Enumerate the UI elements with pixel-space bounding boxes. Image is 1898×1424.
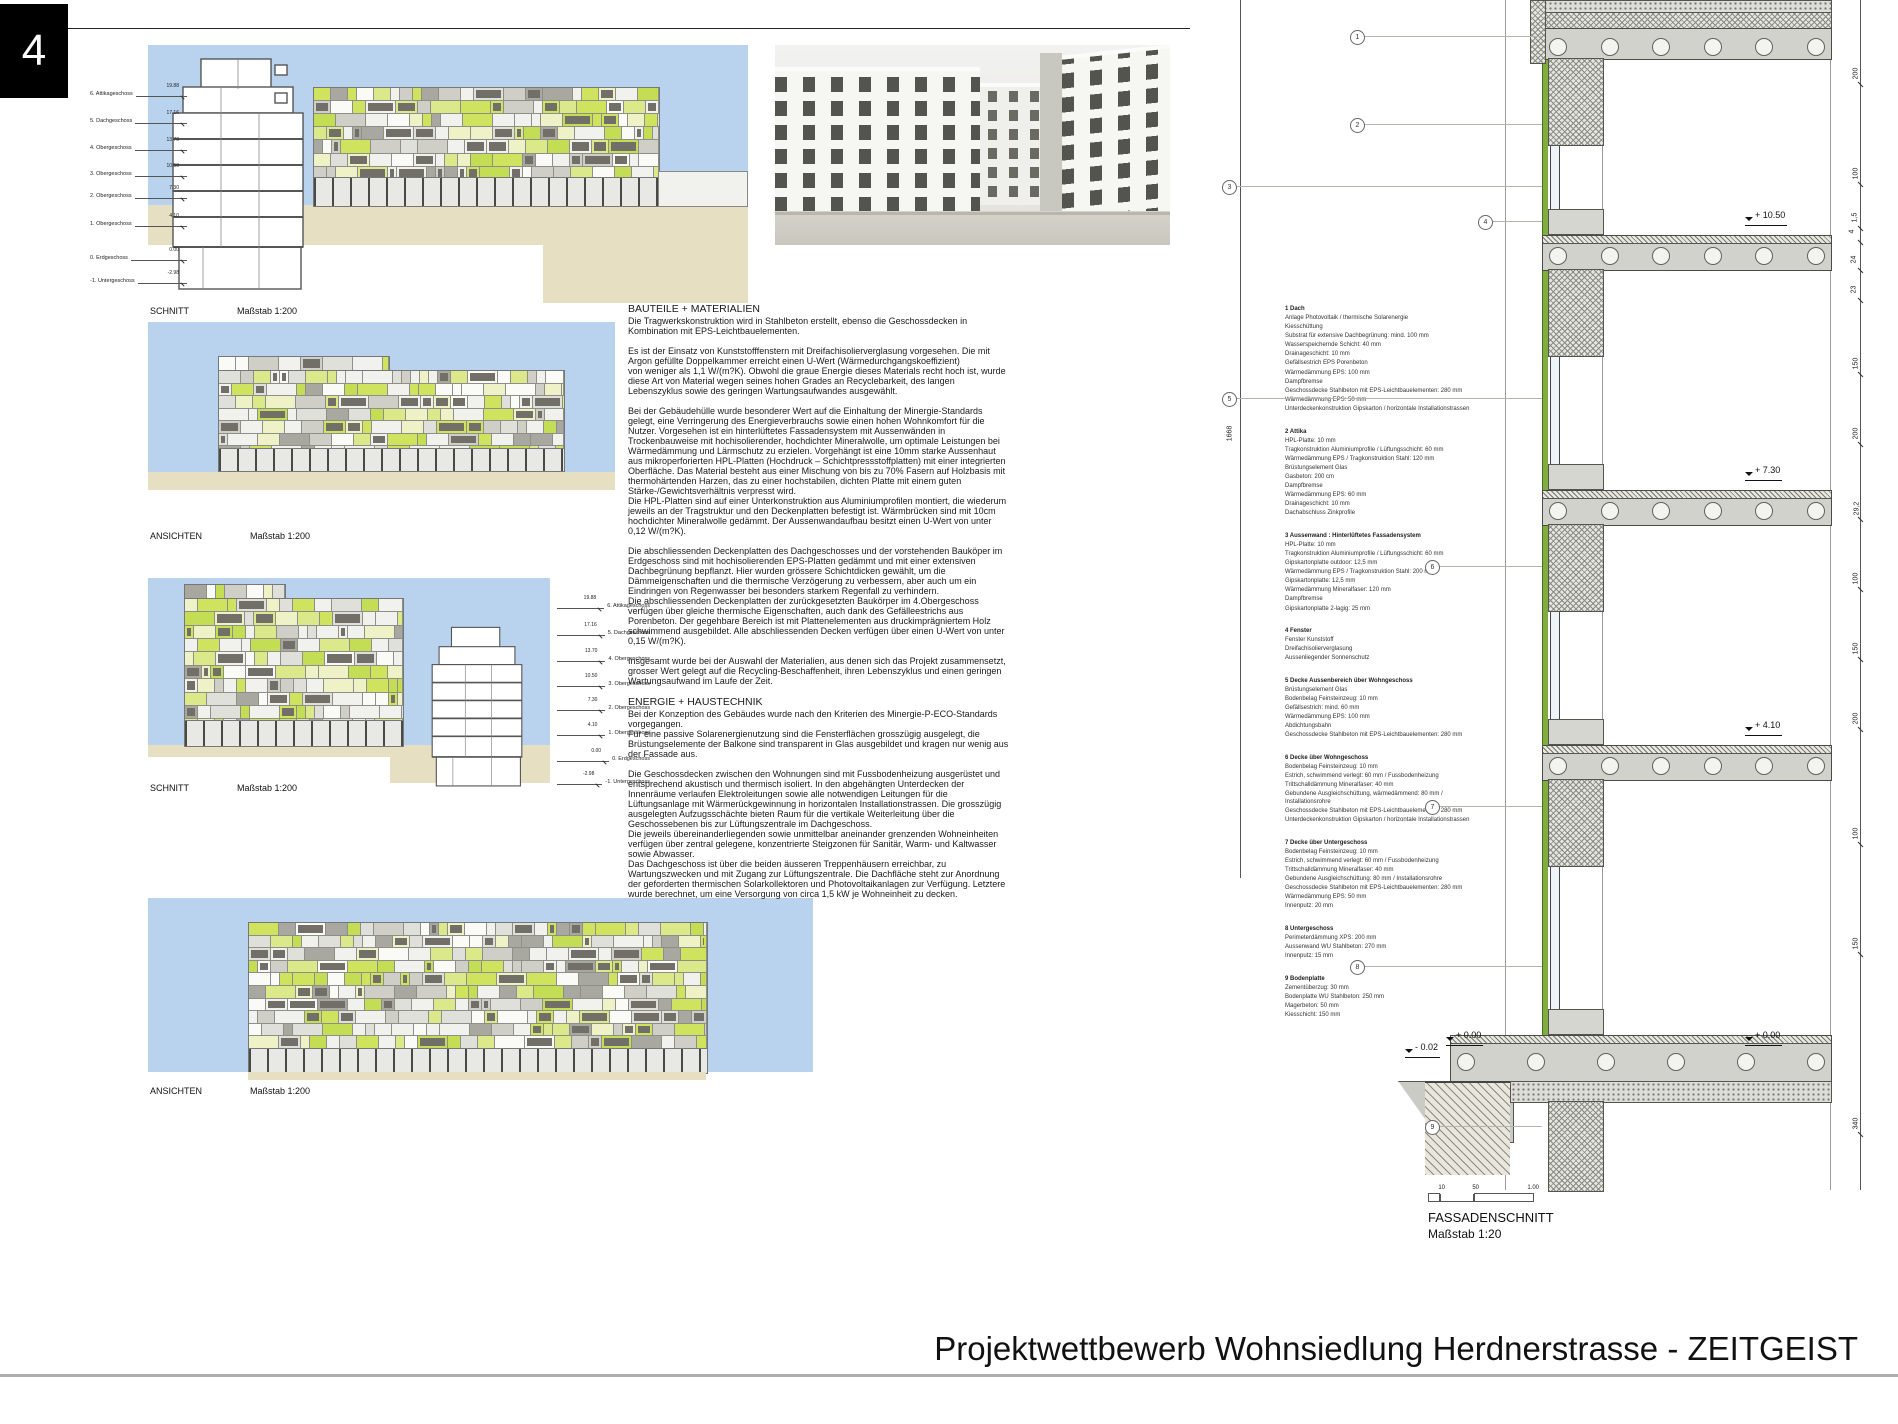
ground-floor-glazing bbox=[248, 1048, 708, 1074]
hollow-core bbox=[1601, 757, 1619, 775]
level-leader-line: 19.88 bbox=[557, 600, 604, 609]
mosaic-row bbox=[219, 409, 564, 421]
dimension-value: 200 bbox=[1852, 68, 1859, 80]
floor-level-row: 3. Obergeschoss10.50 bbox=[90, 168, 190, 177]
mosaic-row bbox=[219, 384, 564, 396]
level-tick bbox=[598, 607, 602, 611]
dimension-value: 4 bbox=[1848, 230, 1855, 234]
drawing-scale: Maßstab 1:200 bbox=[250, 531, 310, 541]
mosaic-row bbox=[249, 986, 707, 998]
ground-floor-glazing bbox=[184, 720, 404, 747]
body-paragraph: Es ist der Einsatz von Kunststofffenster… bbox=[628, 346, 1068, 396]
reference-bubble: 1 bbox=[1350, 30, 1365, 45]
elevation-mark: + 10.50 bbox=[1745, 210, 1787, 226]
photo-building-left bbox=[775, 67, 980, 221]
mosaic-row bbox=[185, 599, 403, 611]
elevation-triangle bbox=[1405, 1049, 1413, 1057]
section-building-drawing bbox=[404, 626, 550, 788]
level-leader-line: 7.30 bbox=[557, 702, 605, 711]
floor-level-row: 0. Erdgeschoss0.00 bbox=[90, 252, 190, 261]
dimension-value: 1,5 bbox=[1851, 213, 1858, 223]
drawing-title: ANSICHTEN bbox=[150, 531, 202, 541]
level-elevation: 17.16 bbox=[584, 622, 597, 628]
drawing-label-schnitt-1: SCHNITTMaßstab 1:200 bbox=[150, 306, 297, 316]
dimension-value: 150 bbox=[1852, 938, 1859, 950]
level-name: 5. Dachgeschoss bbox=[90, 118, 132, 124]
level-tick bbox=[602, 760, 606, 764]
photo-building-side-face bbox=[1040, 53, 1062, 231]
scale-bar-segment: 10 bbox=[1428, 1193, 1440, 1202]
level-leader-line: 10.50 bbox=[557, 678, 605, 687]
hollow-core bbox=[1601, 38, 1619, 56]
window-head-block bbox=[1548, 209, 1604, 235]
fassade-scale: Maßstab 1:20 bbox=[1428, 1227, 1554, 1241]
floor-level-row: 5. Dachgeschoss17.16 bbox=[90, 115, 190, 124]
scale-bar-label: 50 bbox=[1472, 1185, 1479, 1191]
window-glazing bbox=[1550, 867, 1560, 1009]
energy-heading: ENERGIE + HAUSTECHNIK bbox=[628, 696, 1068, 708]
level-tick bbox=[599, 734, 603, 738]
elevation-triangle bbox=[1446, 1037, 1454, 1045]
mosaic-row bbox=[185, 679, 403, 691]
body-paragraph: Die Geschossdecken zwischen den Wohnunge… bbox=[628, 769, 1068, 899]
level-leader-line: 19.88 bbox=[136, 88, 187, 97]
hollow-core bbox=[1652, 38, 1670, 56]
scale-bar-segment: 50 bbox=[1440, 1194, 1474, 1202]
dimension-value: 100 bbox=[1852, 828, 1859, 840]
level-name: 0. Erdgeschoss bbox=[90, 255, 128, 261]
elevation-triangle bbox=[1745, 217, 1753, 225]
mosaic-row bbox=[249, 936, 707, 948]
dimension-value: 100 bbox=[1852, 573, 1859, 585]
hollow-core bbox=[1652, 502, 1670, 520]
level-tick bbox=[598, 634, 602, 638]
photo-curb bbox=[775, 212, 1170, 215]
photo-ground bbox=[775, 211, 1170, 245]
level-leader-line: 17.16 bbox=[557, 627, 605, 636]
hollow-core bbox=[1667, 1053, 1685, 1071]
mosaic-row bbox=[219, 357, 389, 370]
body-paragraph: Bei der Konzeption des Gebäudes wurde na… bbox=[628, 709, 1068, 759]
level-name: 4. Obergeschoss bbox=[90, 145, 132, 151]
hollow-cores bbox=[1549, 755, 1825, 777]
hollow-core bbox=[1807, 247, 1825, 265]
level-tick bbox=[599, 709, 603, 713]
reference-leader bbox=[1438, 566, 1542, 567]
hollow-core bbox=[1549, 757, 1567, 775]
mosaic-row bbox=[249, 999, 707, 1011]
ground-floor-glazing bbox=[313, 177, 660, 207]
drawing-ansichten-2 bbox=[148, 898, 813, 1088]
level-leader-line: 0.00 bbox=[557, 753, 609, 762]
hollow-core bbox=[1755, 247, 1773, 265]
reference-leader bbox=[1235, 398, 1542, 399]
ground-band-deep bbox=[543, 243, 748, 303]
top-rule bbox=[68, 28, 1190, 29]
mosaic-row bbox=[249, 1036, 707, 1048]
mosaic-row bbox=[185, 666, 403, 678]
total-dimension-line bbox=[1240, 0, 1241, 878]
window-glazing bbox=[1550, 612, 1560, 719]
level-elevation: 7.30 bbox=[588, 697, 598, 703]
drawing-scale: Maßstab 1:200 bbox=[237, 306, 297, 316]
drawing-schnitt-2 bbox=[148, 578, 618, 790]
level-leader-line: 4.10 bbox=[135, 218, 187, 227]
mosaic-row bbox=[185, 693, 403, 705]
dimension-value: 200 bbox=[1852, 428, 1859, 440]
hollow-core bbox=[1527, 1053, 1545, 1071]
hollow-cores bbox=[1549, 500, 1825, 522]
reference-leader bbox=[1491, 221, 1542, 222]
level-tick bbox=[599, 685, 603, 689]
dimension-chain-line bbox=[1860, 0, 1861, 1190]
scale-bar-segment: 1.00 bbox=[1474, 1193, 1534, 1202]
mosaic-row bbox=[185, 639, 403, 651]
level-elevation: 19.88 bbox=[584, 595, 597, 601]
hollow-core bbox=[1755, 502, 1773, 520]
scale-bar-label: 10 bbox=[1438, 1185, 1445, 1191]
reference-leader bbox=[1363, 966, 1542, 967]
screed-layer bbox=[1543, 491, 1831, 499]
mosaic-row bbox=[185, 706, 403, 718]
drawing-title: SCHNITT bbox=[150, 306, 189, 316]
hollow-core bbox=[1755, 38, 1773, 56]
elevation-triangle bbox=[1745, 1037, 1753, 1045]
floor-slab bbox=[1542, 490, 1832, 526]
page-number-box: 4 bbox=[0, 4, 68, 98]
hollow-core bbox=[1652, 757, 1670, 775]
floor-level-row: 6. Attikageschoss19.88 bbox=[90, 88, 190, 97]
mosaic-row bbox=[249, 1011, 707, 1023]
level-leader-line: 7.30 bbox=[135, 190, 187, 199]
gravel-layer bbox=[1510, 1081, 1832, 1103]
facade-mosaic-elevation bbox=[248, 922, 708, 1050]
elevation-mark: + 4.10 bbox=[1745, 720, 1782, 736]
wall-insulation bbox=[1548, 269, 1604, 357]
reference-leader bbox=[1235, 186, 1542, 187]
level-leader-line: 0.00 bbox=[131, 252, 187, 261]
floor-level-row: 1. Obergeschoss4.10 bbox=[90, 218, 190, 227]
hollow-core bbox=[1704, 38, 1722, 56]
low-annex-block bbox=[658, 171, 748, 207]
dimension-value: 340 bbox=[1852, 1118, 1859, 1130]
reference-bubble: 4 bbox=[1478, 215, 1493, 230]
render-photo bbox=[775, 45, 1170, 245]
ground-band bbox=[148, 472, 615, 490]
level-elevation: 17.16 bbox=[166, 110, 179, 116]
elevation-mark: + 0.00 bbox=[1745, 1030, 1782, 1046]
energy-paragraphs: Bei der Konzeption des Gebäudes wurde na… bbox=[628, 709, 1068, 899]
reference-bubble: 3 bbox=[1222, 180, 1237, 195]
screed-layer bbox=[1543, 746, 1831, 754]
scale-bar: 10501.00 bbox=[1428, 1186, 1554, 1202]
level-leader-line: 17.16 bbox=[135, 115, 187, 124]
hollow-core bbox=[1549, 247, 1567, 265]
floor-level-row: -1. Untergeschoss-2.98 bbox=[90, 275, 190, 284]
level-tick bbox=[180, 197, 184, 201]
interior-line bbox=[1830, 0, 1831, 1190]
reference-bubble: 7 bbox=[1425, 800, 1440, 815]
level-elevation: -2.98 bbox=[168, 270, 179, 276]
elevation-mark: - 0.02 bbox=[1405, 1042, 1440, 1058]
reference-bubble: 5 bbox=[1222, 392, 1237, 407]
body-paragraph: Die Tragwerkskonstruktion wird in Stahlb… bbox=[628, 316, 1068, 336]
level-leader-line: 13.70 bbox=[135, 142, 187, 151]
hollow-core bbox=[1704, 757, 1722, 775]
mosaic-row bbox=[185, 612, 403, 624]
hollow-core bbox=[1597, 1053, 1615, 1071]
ground-band bbox=[248, 1072, 706, 1080]
elevation-mark: + 0.00 bbox=[1446, 1030, 1483, 1046]
presentation-board: 4 bbox=[0, 0, 1898, 1424]
level-tick bbox=[180, 225, 184, 229]
reference-bubble: 8 bbox=[1350, 960, 1365, 975]
mosaic-row bbox=[249, 923, 707, 935]
level-elevation: 7.30 bbox=[169, 185, 179, 191]
drawing-schnitt-1 bbox=[148, 45, 748, 310]
level-elevation: 13.70 bbox=[585, 648, 598, 654]
mosaic-row bbox=[314, 88, 659, 100]
floor-slab bbox=[1542, 235, 1832, 271]
body-paragraph: Bei der Gebäudehülle wurde besonderer We… bbox=[628, 406, 1068, 536]
scale-bar-label: 1.00 bbox=[1527, 1185, 1539, 1191]
level-name: 2. Obergeschoss bbox=[90, 193, 132, 199]
window-glazing bbox=[1550, 146, 1560, 209]
dimension-value: 29,2 bbox=[1853, 502, 1860, 516]
level-tick bbox=[180, 122, 184, 126]
dimension-value: 24 bbox=[1850, 256, 1857, 264]
page-number: 4 bbox=[22, 26, 46, 76]
level-leader-line: 13.70 bbox=[557, 653, 605, 662]
drawing-scale: Maßstab 1:200 bbox=[250, 1086, 310, 1096]
hollow-core bbox=[1737, 1053, 1755, 1071]
level-elevation: 19.88 bbox=[166, 83, 179, 89]
level-tick bbox=[596, 783, 600, 787]
level-name: 1. Obergeschoss bbox=[90, 221, 132, 227]
wall-insulation bbox=[1548, 58, 1604, 146]
reference-bubble: 2 bbox=[1350, 118, 1365, 133]
project-title: Projektwettbewerb Wohnsiedlung Herdnerst… bbox=[934, 1330, 1858, 1368]
hollow-cores bbox=[1549, 245, 1825, 267]
hollow-core bbox=[1549, 502, 1567, 520]
section-cut-line bbox=[1505, 0, 1506, 1190]
level-name: -1. Untergeschoss bbox=[90, 278, 135, 284]
dimension-value: 150 bbox=[1852, 358, 1859, 370]
drawing-title: ANSICHTEN bbox=[150, 1086, 202, 1096]
hollow-cores bbox=[1549, 38, 1825, 56]
hollow-core bbox=[1457, 1053, 1475, 1071]
hollow-core bbox=[1755, 757, 1773, 775]
hollow-core bbox=[1601, 502, 1619, 520]
window-glazing bbox=[1550, 357, 1560, 464]
basement-wall-insulation bbox=[1548, 1101, 1604, 1192]
level-elevation: 13.70 bbox=[166, 137, 179, 143]
materials-paragraphs: Die Tragwerkskonstruktion wird in Stahlb… bbox=[628, 316, 1068, 686]
mosaic-row bbox=[185, 652, 403, 664]
elevation-triangle bbox=[1745, 472, 1753, 480]
elevation-mark: + 7.30 bbox=[1745, 465, 1782, 481]
reference-leader bbox=[1438, 1126, 1542, 1127]
attika-parapet bbox=[1530, 0, 1546, 64]
level-elevation: 4.10 bbox=[169, 213, 179, 219]
dimension-value: 23 bbox=[1850, 286, 1857, 294]
level-leader-line: -2.98 bbox=[138, 275, 187, 284]
hollow-core bbox=[1807, 502, 1825, 520]
drawing-label-ansichten-1: ANSICHTENMaßstab 1:200 bbox=[150, 531, 310, 541]
footer-rule bbox=[0, 1374, 1898, 1377]
level-elevation: 4.10 bbox=[588, 722, 598, 728]
reference-leader bbox=[1363, 124, 1542, 125]
mosaic-row bbox=[185, 585, 285, 598]
level-leader-line: -2.98 bbox=[557, 776, 602, 785]
mosaic-row bbox=[314, 140, 659, 152]
mosaic-row bbox=[219, 421, 564, 433]
reference-leader bbox=[1363, 36, 1542, 37]
body-paragraph: Die abschliessenden Deckenplatten des Da… bbox=[628, 546, 1068, 646]
level-elevation: 0.00 bbox=[169, 247, 179, 253]
mosaic-row bbox=[314, 154, 659, 166]
level-elevation: -2.98 bbox=[583, 771, 594, 777]
dimension-value: 150 bbox=[1852, 643, 1859, 655]
level-name: 3. Obergeschoss bbox=[90, 171, 132, 177]
reference-bubble: 9 bbox=[1425, 1120, 1440, 1135]
body-paragraph: Insgesamt wurde bei der Auswahl der Mate… bbox=[628, 656, 1068, 686]
drawing-ansichten-1 bbox=[148, 322, 615, 512]
screed-layer bbox=[1543, 236, 1831, 244]
hollow-core bbox=[1549, 38, 1567, 56]
fassade-title: FASSADENSCHNITT bbox=[1428, 1210, 1554, 1225]
mosaic-row bbox=[249, 948, 707, 960]
level-elevation: 0.00 bbox=[591, 748, 601, 754]
hollow-core bbox=[1807, 1053, 1825, 1071]
mosaic-row bbox=[249, 1024, 707, 1036]
floor-slab bbox=[1542, 745, 1832, 781]
hollow-cores bbox=[1457, 1045, 1825, 1079]
ground-floor-glazing bbox=[218, 448, 565, 472]
reference-bubble: 6 bbox=[1425, 560, 1440, 575]
level-tick bbox=[599, 660, 603, 664]
drawing-label-schnitt-2: SCHNITTMaßstab 1:200 bbox=[150, 783, 297, 793]
level-tick bbox=[180, 149, 184, 153]
window-head-block bbox=[1548, 719, 1604, 745]
level-tick bbox=[180, 175, 184, 179]
reference-leader bbox=[1438, 806, 1542, 807]
materials-heading: BAUTEILE + MATERIALIEN bbox=[628, 303, 1068, 315]
mosaic-row bbox=[249, 973, 707, 985]
level-leader-line: 10.50 bbox=[135, 168, 187, 177]
wall-insulation bbox=[1548, 524, 1604, 612]
roof-slab bbox=[1542, 28, 1832, 60]
window-head-block bbox=[1548, 1009, 1604, 1035]
level-tick bbox=[180, 95, 184, 99]
mosaic-row bbox=[314, 114, 659, 126]
mosaic-row bbox=[219, 396, 564, 408]
window-head-block bbox=[1548, 464, 1604, 490]
mosaic-row bbox=[219, 434, 564, 446]
dimension-value: 100 bbox=[1852, 168, 1859, 180]
elevation-triangle bbox=[1745, 727, 1753, 735]
level-tick bbox=[180, 282, 184, 286]
text-column: BAUTEILE + MATERIALIEN Die Tragwerkskons… bbox=[628, 303, 1068, 909]
fassade-caption: 10501.00 FASSADENSCHNITT Maßstab 1:20 bbox=[1428, 1186, 1554, 1241]
drawing-scale: Maßstab 1:200 bbox=[237, 783, 297, 793]
mosaic-row bbox=[314, 127, 659, 139]
drawing-label-ansichten-2: ANSICHTENMaßstab 1:200 bbox=[150, 1086, 310, 1096]
floor-levels-column-left: 6. Attikageschoss19.885. Dachgeschoss17.… bbox=[90, 80, 190, 290]
hollow-core bbox=[1601, 247, 1619, 265]
hollow-core bbox=[1652, 247, 1670, 265]
level-leader-line: 4.10 bbox=[557, 727, 605, 736]
dimension-value: 200 bbox=[1852, 713, 1859, 725]
mosaic-row bbox=[314, 101, 659, 113]
level-elevation: 10.50 bbox=[166, 163, 179, 169]
level-name: 6. Attikageschoss bbox=[90, 91, 133, 97]
mosaic-row bbox=[249, 961, 707, 973]
hollow-core bbox=[1807, 38, 1825, 56]
level-elevation: 10.50 bbox=[585, 673, 598, 679]
level-tick bbox=[180, 259, 184, 263]
wall-insulation bbox=[1548, 779, 1604, 867]
mosaic-row bbox=[219, 371, 564, 383]
total-dimension-value: 1668 bbox=[1226, 426, 1233, 442]
hollow-core bbox=[1704, 502, 1722, 520]
floor-level-row: 2. Obergeschoss7.30 bbox=[90, 190, 190, 199]
fassadenschnitt-drawing: 1668+ 10.50+ 7.30+ 4.10- 0.02+ 0.00+ 0.0… bbox=[1200, 0, 1898, 1260]
drawing-title: SCHNITT bbox=[150, 783, 189, 793]
hollow-core bbox=[1704, 247, 1722, 265]
mosaic-row bbox=[185, 626, 403, 638]
hollow-core bbox=[1807, 757, 1825, 775]
floor-level-row: 4. Obergeschoss13.70 bbox=[90, 142, 190, 151]
